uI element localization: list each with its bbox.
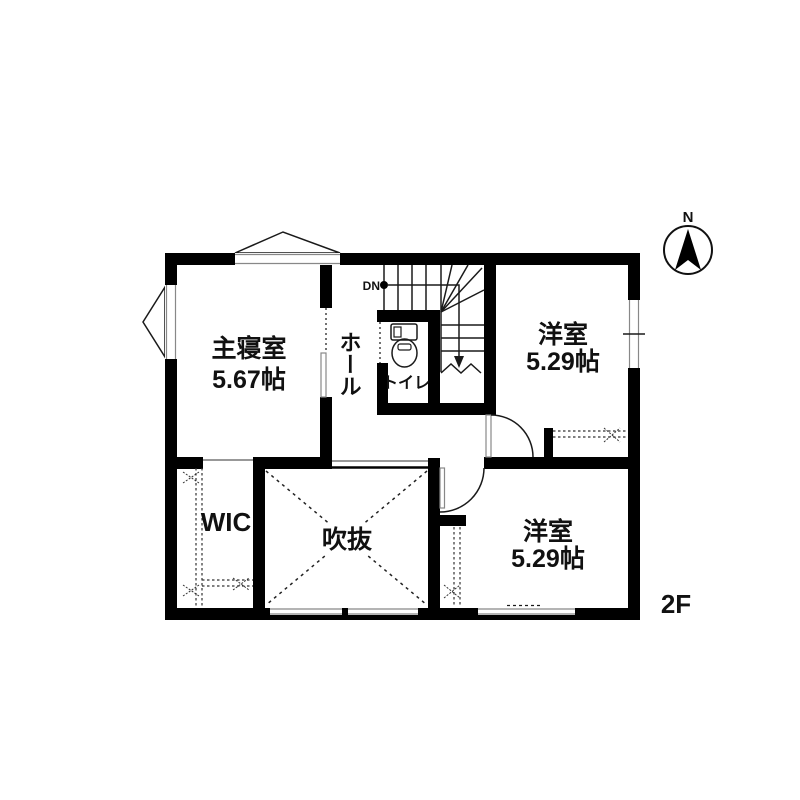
floor-plan-page: DN	[0, 0, 800, 800]
room-wic: WIC	[201, 507, 252, 537]
bay-window-left	[143, 287, 165, 357]
sliding-door-master-bedroom	[321, 308, 326, 397]
room-name: 吹抜	[322, 526, 373, 554]
bay-window-top	[235, 232, 340, 253]
room-name: 主寝室	[211, 334, 286, 363]
toilet-icon	[391, 324, 417, 367]
window-bottom-void-1	[270, 608, 342, 615]
room-name: WIC	[201, 507, 252, 537]
room-western-north: 洋室 5.29帖	[526, 320, 600, 376]
room-size: 5.29帖	[526, 348, 600, 376]
room-size: 5.29帖	[511, 545, 585, 573]
room-size: 5.67帖	[212, 366, 286, 394]
north-room-closet-pipe	[553, 428, 627, 442]
room-western-south: 洋室 5.29帖	[511, 517, 585, 573]
door-south-room	[440, 468, 484, 512]
window-left-bay	[165, 285, 177, 359]
stair-start-dot	[380, 281, 388, 289]
north-label: N	[683, 209, 694, 226]
room-name: 洋室	[523, 517, 573, 546]
floor-plan-2f: DN	[0, 0, 800, 800]
room-hall: ホール	[337, 331, 362, 397]
south-room-closet-pipe	[444, 527, 460, 606]
window-right	[623, 300, 645, 368]
door-north-room	[486, 415, 533, 457]
room-name: トイレ	[382, 375, 430, 392]
room-void: 吹抜	[314, 524, 380, 554]
wic-hanger-pipe	[183, 468, 253, 606]
stair-dn-label: DN	[363, 279, 380, 293]
hanger-mark-icon	[604, 428, 620, 442]
floor-label: 2F	[661, 589, 691, 619]
stair-down-arrow-icon	[454, 356, 464, 368]
room-toilet: トイレ	[382, 375, 430, 392]
void-railing	[332, 461, 428, 468]
room-master-bedroom: 主寝室 5.67帖	[211, 334, 286, 394]
room-name: ホール	[337, 331, 362, 397]
north-compass-icon: N	[664, 209, 712, 274]
window-bottom-void-2	[348, 608, 418, 615]
window-bottom-room	[478, 606, 575, 616]
stair-cut-line	[441, 364, 481, 373]
room-name: 洋室	[538, 320, 588, 349]
window-top-bay	[235, 253, 340, 265]
hanger-mark-icon	[444, 585, 460, 598]
